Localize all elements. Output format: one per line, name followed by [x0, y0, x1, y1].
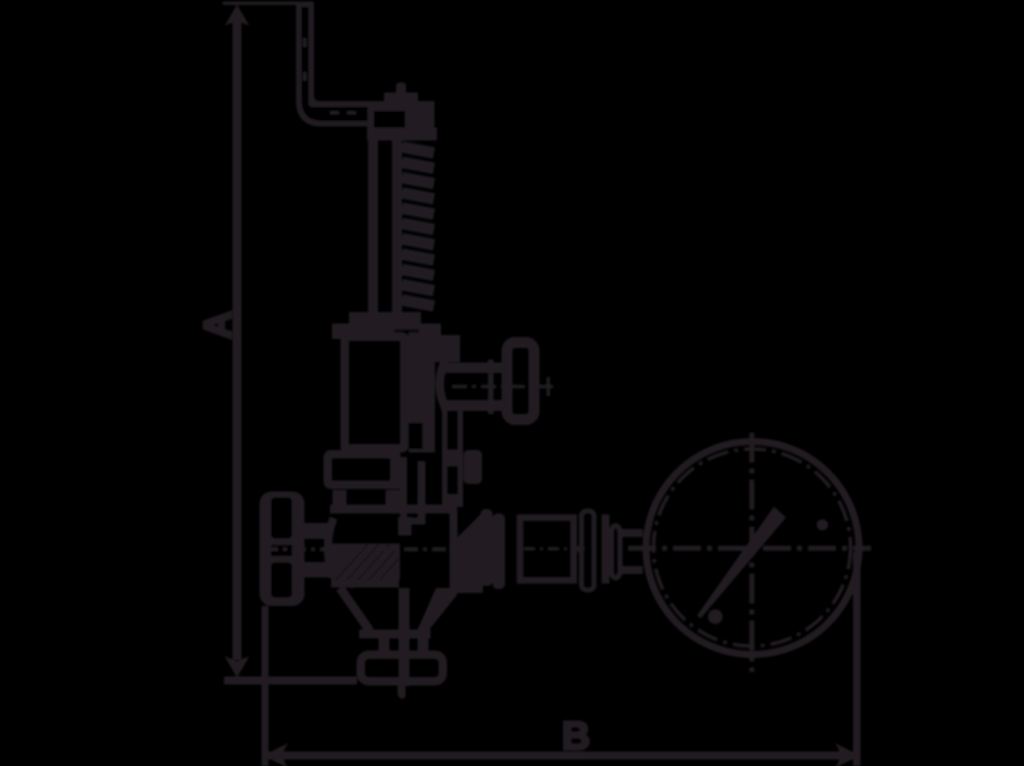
- svg-text:B: B: [562, 715, 590, 758]
- svg-text:A: A: [198, 311, 240, 338]
